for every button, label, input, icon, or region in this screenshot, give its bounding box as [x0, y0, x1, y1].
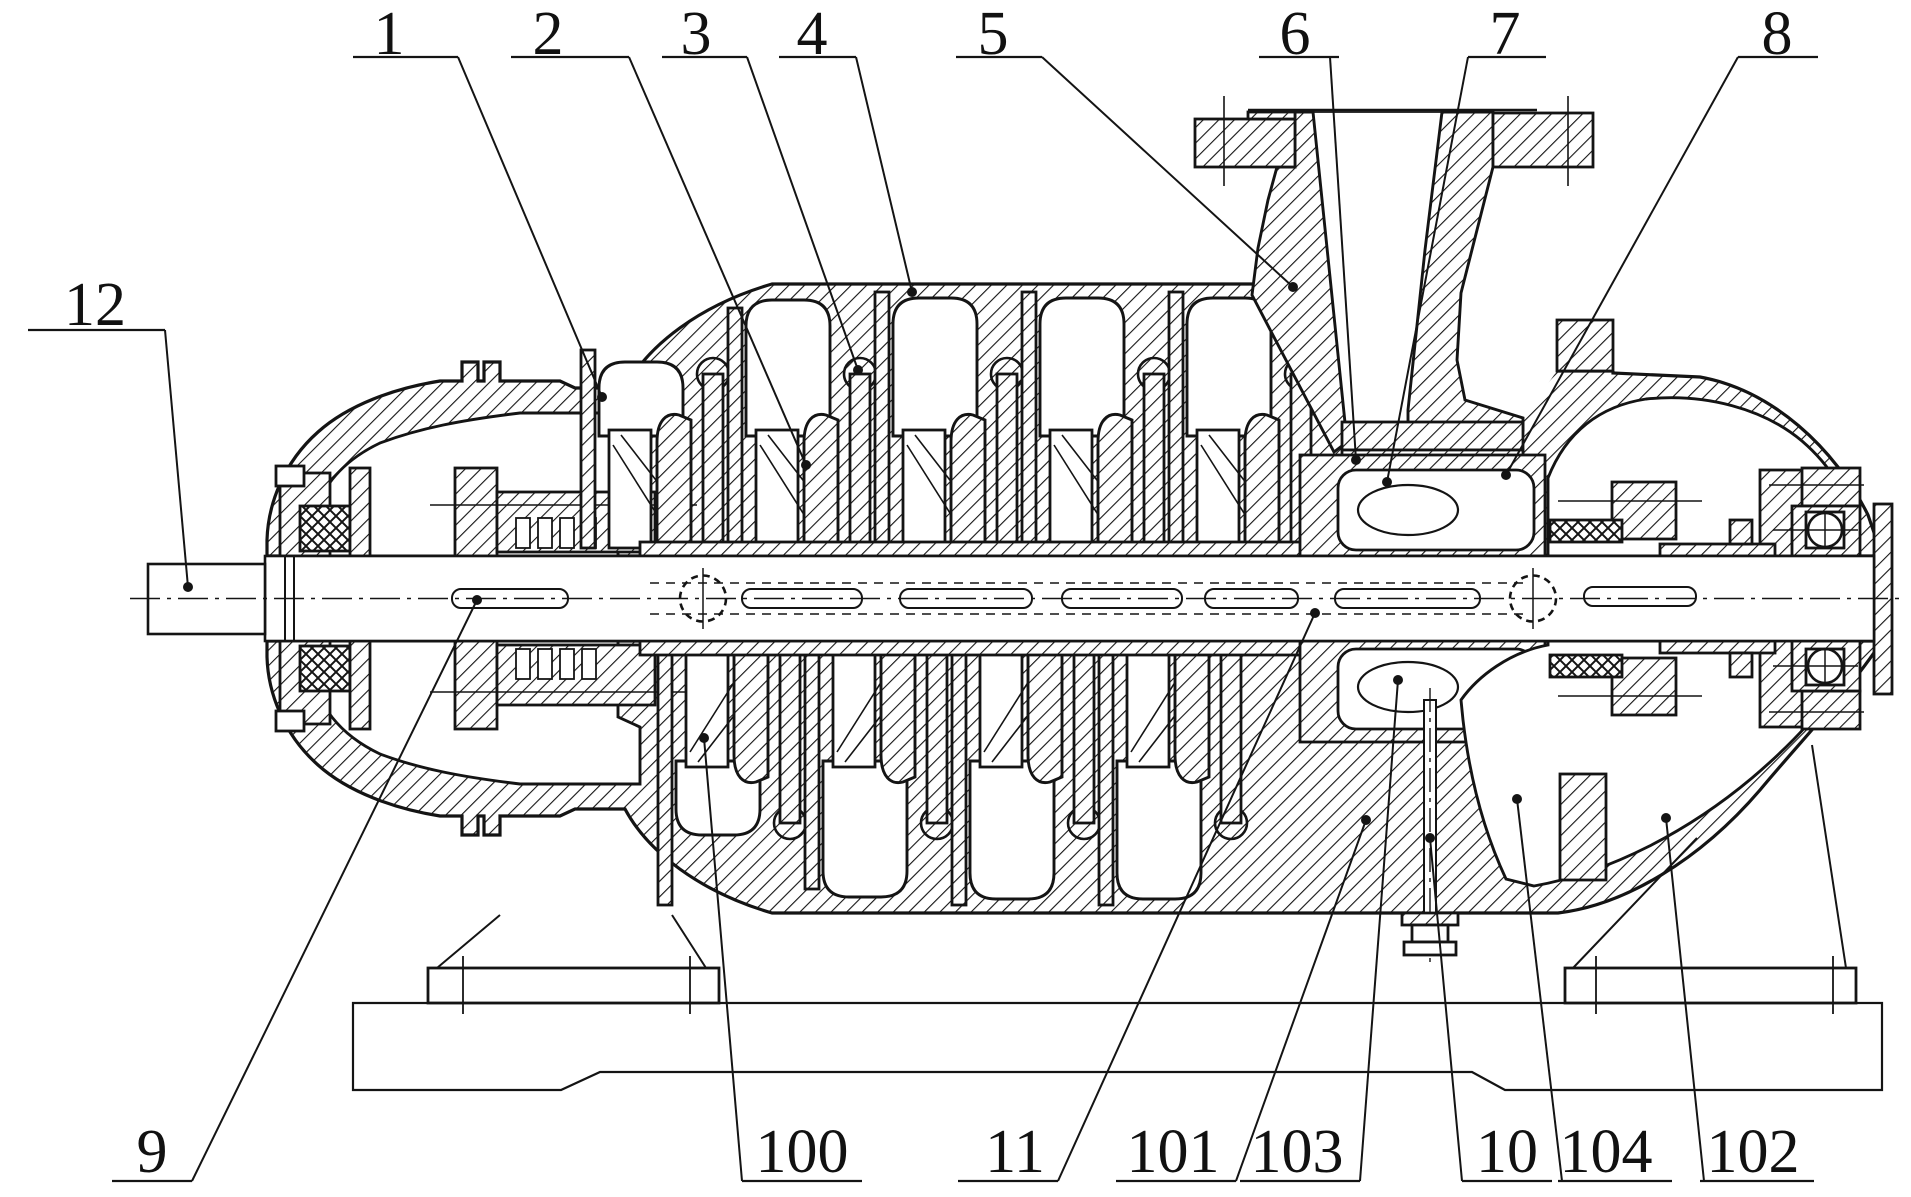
svg-text:104: 104 — [1560, 1118, 1653, 1186]
svg-text:103: 103 — [1251, 1118, 1344, 1186]
svg-text:11: 11 — [985, 1118, 1045, 1186]
svg-text:102: 102 — [1707, 1118, 1800, 1186]
svg-text:9: 9 — [137, 1118, 168, 1186]
svg-text:10: 10 — [1476, 1118, 1538, 1186]
svg-text:100: 100 — [756, 1118, 849, 1186]
svg-text:101: 101 — [1127, 1118, 1220, 1186]
svg-text:12: 12 — [64, 271, 126, 339]
